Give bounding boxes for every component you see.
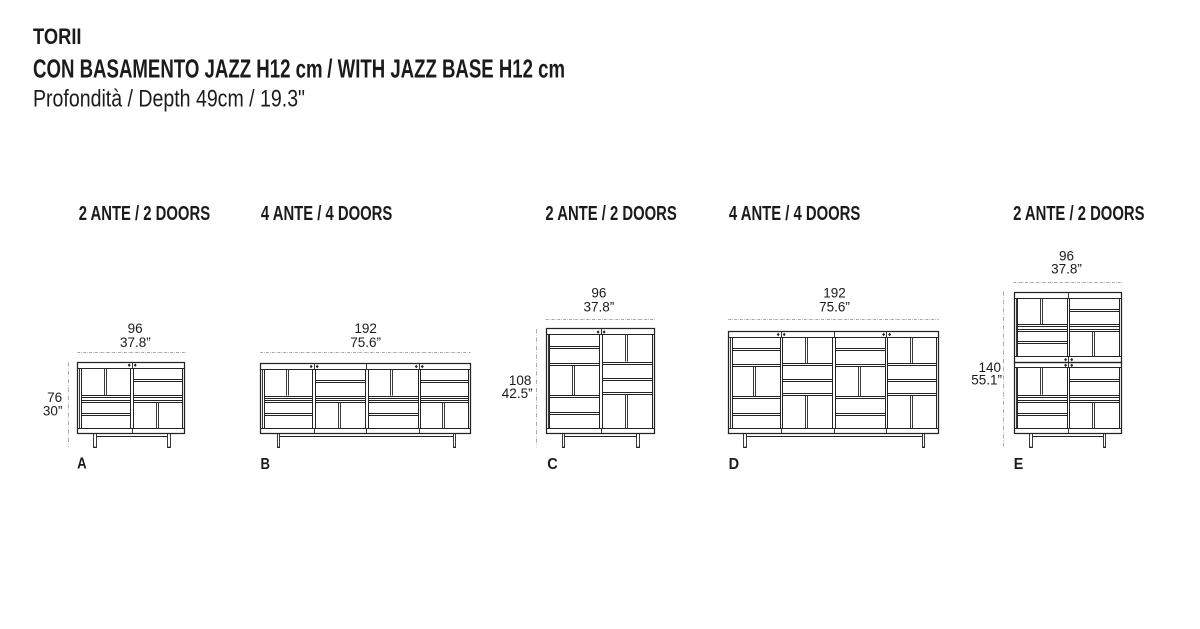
svg-text:30”: 30” xyxy=(43,404,63,419)
svg-text:37.8”: 37.8” xyxy=(120,335,151,350)
svg-text:192: 192 xyxy=(354,321,377,336)
svg-text:42.5”: 42.5” xyxy=(502,386,533,401)
svg-text:/ WITH JAZZ BASE H12 cm: / WITH JAZZ BASE H12 cm xyxy=(327,54,565,84)
svg-text:B: B xyxy=(261,456,271,473)
svg-text:96: 96 xyxy=(591,285,606,300)
svg-text:2 ANTE / 2 DOORS: 2 ANTE / 2 DOORS xyxy=(79,202,210,225)
svg-text:76: 76 xyxy=(47,390,62,405)
svg-text:E: E xyxy=(1014,456,1024,473)
svg-text:192: 192 xyxy=(823,285,846,300)
svg-text:Profondità / Depth 49cm / 19.3: Profondità / Depth 49cm / 19.3" xyxy=(33,86,305,113)
svg-text:37.8”: 37.8” xyxy=(584,299,615,314)
svg-text:D: D xyxy=(729,456,740,473)
svg-text:CON BASAMENTO JAZZ H12 cm: CON BASAMENTO JAZZ H12 cm xyxy=(33,54,323,84)
svg-text:C: C xyxy=(547,456,558,473)
svg-text:TORII: TORII xyxy=(33,24,82,49)
svg-text:75.6”: 75.6” xyxy=(350,335,381,350)
svg-text:4 ANTE / 4 DOORS: 4 ANTE / 4 DOORS xyxy=(261,202,392,225)
svg-text:55.1”: 55.1” xyxy=(971,373,1002,388)
svg-text:96: 96 xyxy=(128,321,143,336)
svg-text:4 ANTE / 4 DOORS: 4 ANTE / 4 DOORS xyxy=(729,202,860,225)
svg-text:75.6”: 75.6” xyxy=(819,299,850,314)
svg-text:37.8”: 37.8” xyxy=(1051,261,1082,276)
svg-text:A: A xyxy=(77,456,87,473)
svg-text:2 ANTE / 2 DOORS: 2 ANTE / 2 DOORS xyxy=(545,202,676,225)
svg-text:2 ANTE / 2 DOORS: 2 ANTE / 2 DOORS xyxy=(1013,202,1144,225)
